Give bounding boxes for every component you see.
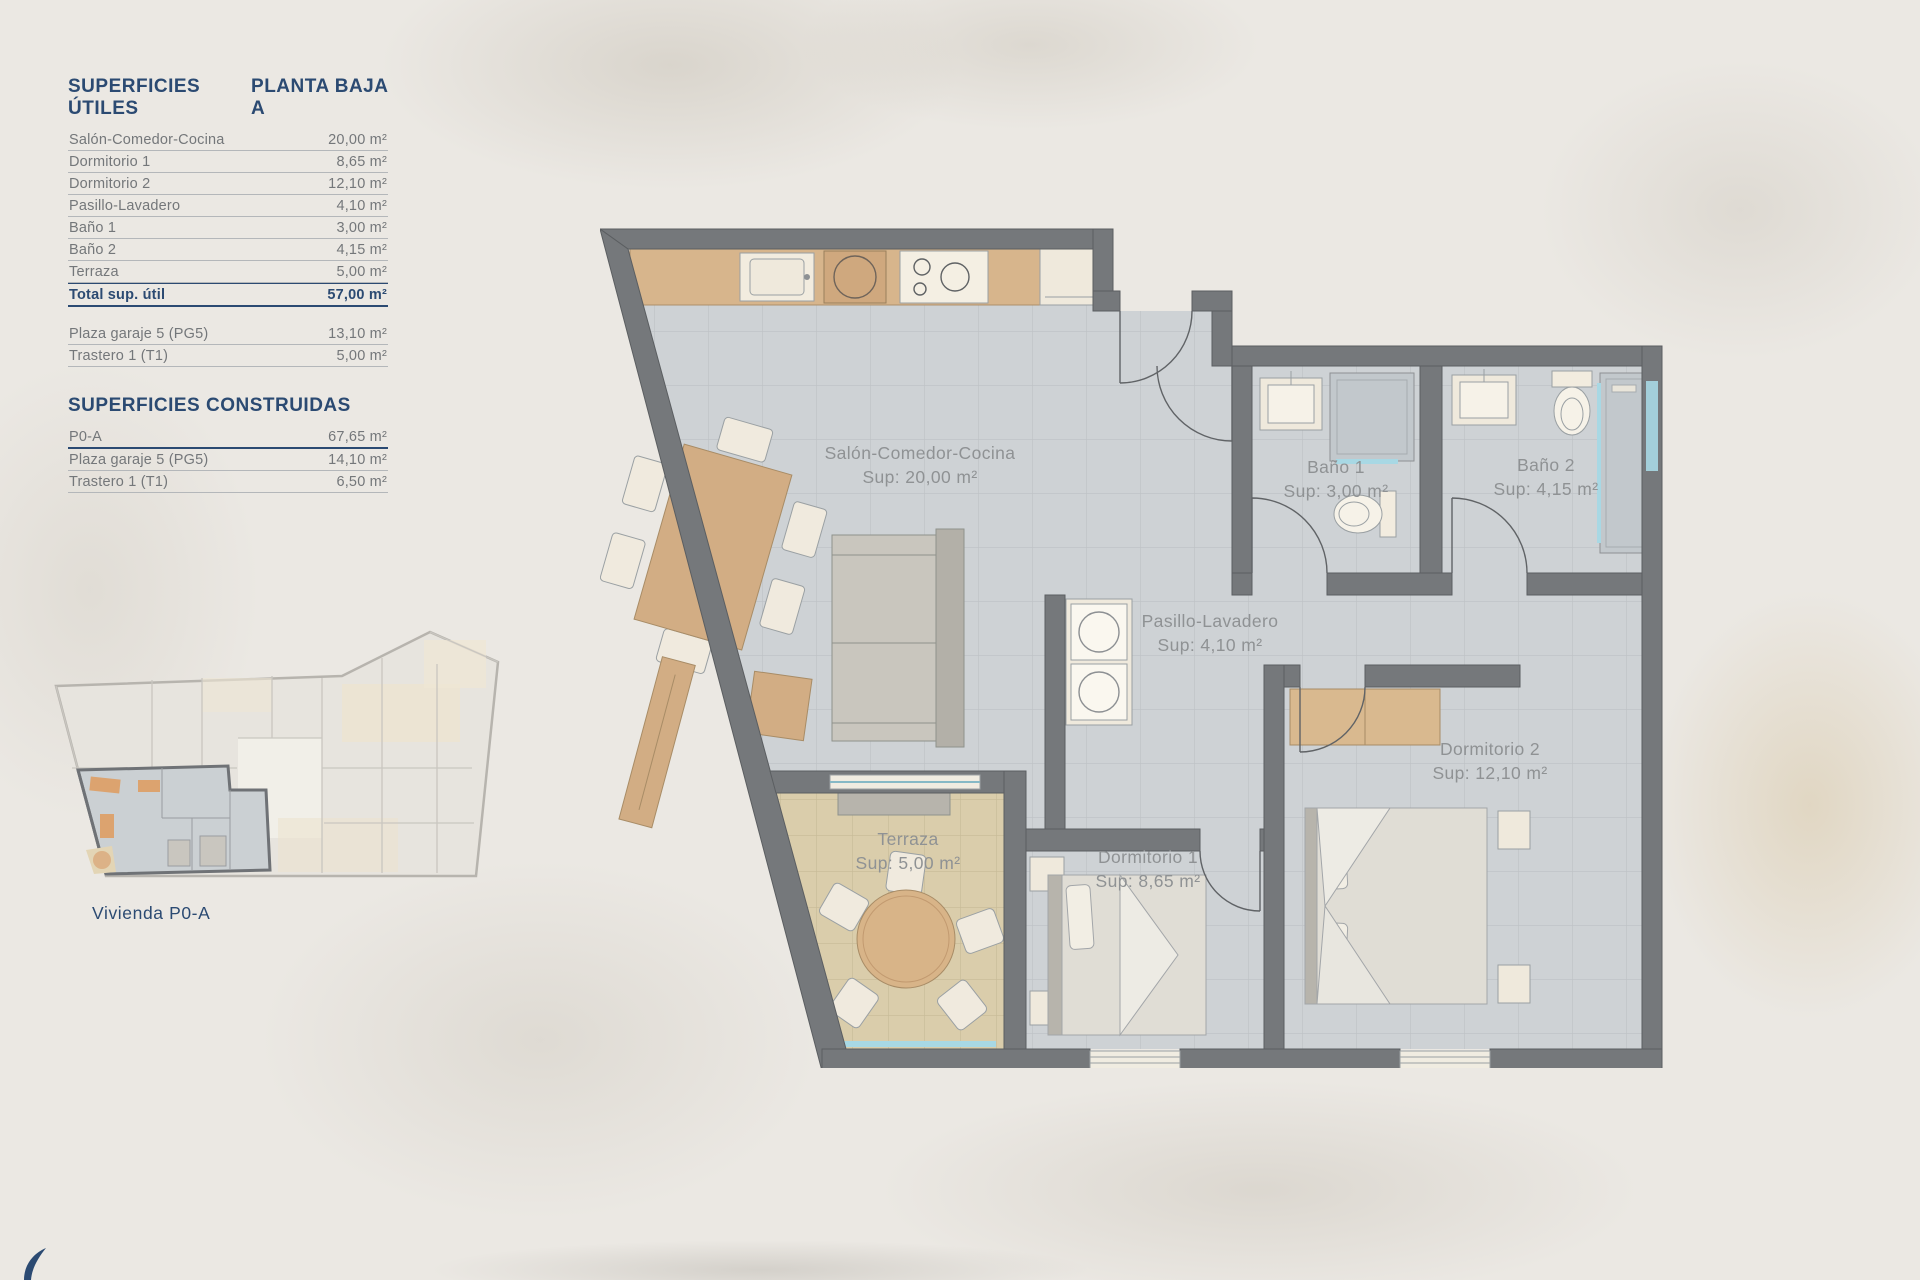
background-texture bbox=[430, 1240, 1090, 1280]
table-row: Trastero 1 (T1)6,50 m² bbox=[68, 471, 388, 493]
useful-areas-table: Salón-Comedor-Cocina20,00 m² Dormitorio … bbox=[68, 129, 388, 307]
overview-caption: Vivienda P0-A bbox=[92, 903, 210, 924]
apartment-floorplan: Salón-Comedor-Cocina Sup: 20,00 m² Baño … bbox=[600, 223, 1680, 1068]
useful-areas-title: SUPERFICIES ÚTILES bbox=[68, 76, 251, 120]
room-label-bano1: Baño 1 bbox=[1307, 457, 1365, 477]
room-sup-bano2: Sup: 4,15 m² bbox=[1494, 479, 1599, 499]
room-sup-salon: Sup: 20,00 m² bbox=[862, 467, 977, 487]
floor-title: PLANTA BAJA A bbox=[251, 76, 388, 120]
tv-unit bbox=[619, 657, 695, 828]
sofa bbox=[832, 529, 964, 747]
table-row: Pasillo-Lavadero4,10 m² bbox=[68, 195, 388, 217]
areas-panel: SUPERFICIES ÚTILES PLANTA BAJA A Salón-C… bbox=[68, 76, 388, 493]
room-label-dorm2: Dormitorio 2 bbox=[1440, 739, 1540, 759]
table-row: Plaza garaje 5 (PG5)13,10 m² bbox=[68, 323, 388, 345]
room-label-terraza: Terraza bbox=[877, 829, 938, 849]
table-row: Trastero 1 (T1)5,00 m² bbox=[68, 345, 388, 367]
washer-dryer bbox=[1066, 599, 1132, 725]
table-row: P0-A67,65 m² bbox=[68, 426, 388, 449]
built-areas-title: SUPERFICIES CONSTRUIDAS bbox=[68, 395, 388, 417]
room-label-dorm1: Dormitorio 1 bbox=[1098, 847, 1198, 867]
annex-areas-table: Plaza garaje 5 (PG5)13,10 m² Trastero 1 … bbox=[68, 323, 388, 367]
room-label-salon: Salón-Comedor-Cocina bbox=[825, 443, 1016, 463]
table-row: Dormitorio 212,10 m² bbox=[68, 173, 388, 195]
room-sup-dorm2: Sup: 12,10 m² bbox=[1432, 763, 1547, 783]
room-sup-bano1: Sup: 3,00 m² bbox=[1284, 481, 1389, 501]
table-row: Dormitorio 18,65 m² bbox=[68, 151, 388, 173]
overview-plan-drawing bbox=[42, 618, 522, 898]
table-row: Baño 13,00 m² bbox=[68, 217, 388, 239]
total-row: Total sup. útil57,00 m² bbox=[68, 283, 388, 307]
built-areas-table: P0-A67,65 m² Plaza garaje 5 (PG5)14,10 m… bbox=[68, 426, 388, 493]
background-texture bbox=[800, 0, 1260, 130]
background-texture bbox=[1650, 590, 1920, 1020]
background-texture bbox=[880, 1080, 1640, 1280]
background-texture bbox=[380, 0, 960, 190]
room-sup-pasillo: Sup: 4,10 m² bbox=[1158, 635, 1263, 655]
kitchen-counter bbox=[630, 249, 1105, 305]
table-row: Baño 24,15 m² bbox=[68, 239, 388, 261]
building-overview-plan bbox=[42, 618, 522, 898]
plan-sheet: SUPERFICIES ÚTILES PLANTA BAJA A Salón-C… bbox=[0, 0, 1920, 1280]
room-label-pasillo: Pasillo-Lavadero bbox=[1142, 611, 1279, 631]
table-row: Terraza5,00 m² bbox=[68, 261, 388, 283]
room-sup-terraza: Sup: 5,00 m² bbox=[856, 853, 961, 873]
room-label-bano2: Baño 2 bbox=[1517, 455, 1575, 475]
floorplan-drawing: Salón-Comedor-Cocina Sup: 20,00 m² Baño … bbox=[600, 223, 1680, 1068]
table-row: Plaza garaje 5 (PG5)14,10 m² bbox=[68, 449, 388, 471]
brand-logo bbox=[16, 1248, 56, 1280]
room-sup-dorm1: Sup: 8,65 m² bbox=[1096, 871, 1201, 891]
table-row: Salón-Comedor-Cocina20,00 m² bbox=[68, 129, 388, 151]
